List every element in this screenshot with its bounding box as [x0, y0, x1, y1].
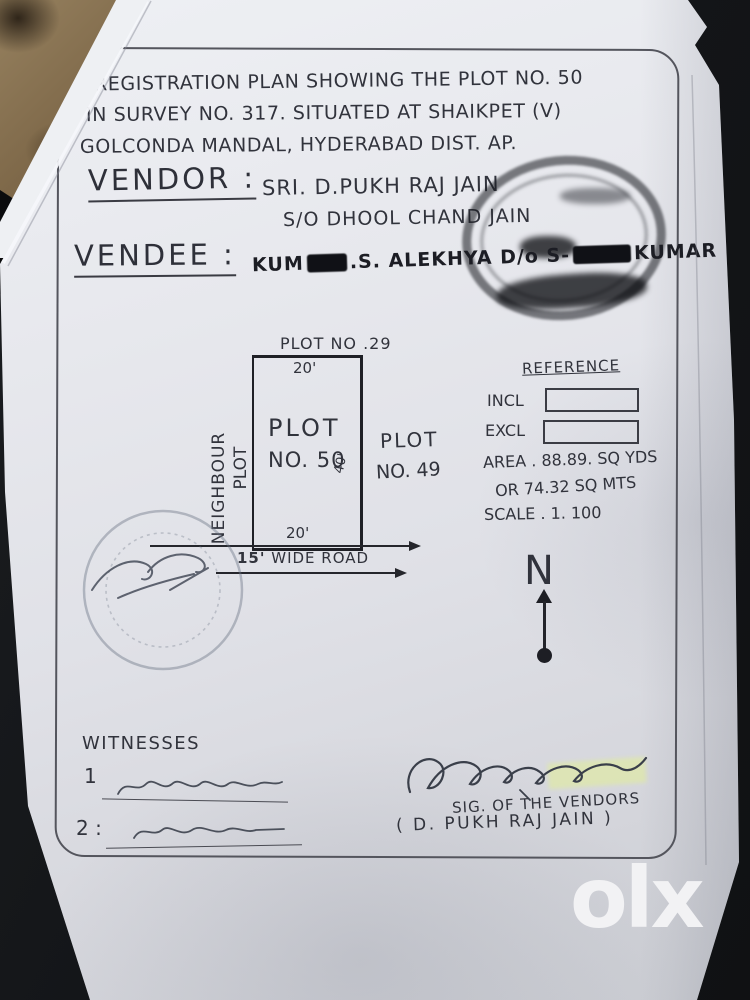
photo-of-registration-plan: REGISTRATION PLAN SHOWING THE PLOT NO. 5… — [0, 0, 750, 1000]
witness-1-signature — [118, 782, 282, 794]
vendor-signature-flick — [520, 790, 530, 800]
faint-round-stamp-inner — [106, 533, 220, 647]
witness-2-signature — [134, 828, 284, 838]
stamp-signature — [92, 554, 208, 598]
vendor-signature — [408, 758, 646, 792]
olx-watermark: olx — [570, 856, 702, 940]
paper-crease — [692, 75, 706, 865]
faint-round-stamp-icon — [84, 511, 242, 669]
